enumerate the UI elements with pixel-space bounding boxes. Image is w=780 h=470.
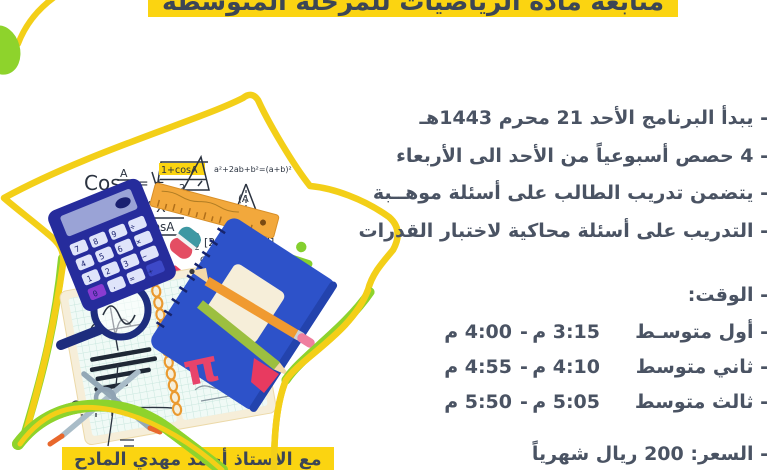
page-title-highlight: متابعة مادة الرياضيات للمرحلة المتوسطة xyxy=(148,0,678,17)
calc-keys-row: 123− xyxy=(81,244,163,286)
program-details: - يبدأ البرنامج الأحد 21 محرم 1443هـ - 4… xyxy=(412,100,768,470)
triangle-doodle xyxy=(183,157,209,190)
pencil-orange-icon xyxy=(189,268,310,343)
calc-keys-4: 0.=+ xyxy=(92,261,169,299)
notebook-scribbles xyxy=(195,381,235,402)
grade-label: - أول متوسـط xyxy=(640,315,768,350)
division-icon xyxy=(276,237,318,282)
teacher-badge: مع الأستاذ أحمد مهدي المادح xyxy=(62,447,334,470)
corner-decoration xyxy=(0,0,62,79)
program-line: - يبدأ البرنامج الأحد 21 محرم 1443هـ xyxy=(412,100,768,138)
program-line: - 4 حصص أسبوعياً من الأحد الى الأربعاء xyxy=(412,138,768,176)
flyer-root: Cos A 2 = ± 1+cosA 2 X² = ( X cosA a²+2a… xyxy=(0,0,780,470)
magnifier-icon xyxy=(61,283,148,345)
price-line: - السعر: 200 ريال شهرياً xyxy=(412,436,768,470)
schedule-row: - ثاني متوسط 4:10 م - 4:55 م xyxy=(412,350,768,385)
teacher-name: مع الأستاذ أحمد مهدي المادح xyxy=(74,450,322,470)
calc-keys-3: 123− xyxy=(86,246,163,284)
formula-x2b-text: = ( X xyxy=(130,200,166,216)
time-start: 4:10 م xyxy=(536,350,600,385)
time-dash: - xyxy=(512,350,536,385)
eraser-icon xyxy=(167,224,204,262)
formula-series: n 2 [2a+(n+1)d] Qu xyxy=(192,231,274,266)
program-line: - التدريب على أسئلة محاكية لاختبار القدر… xyxy=(412,213,768,251)
formula-cosa: cosA xyxy=(136,218,184,235)
ruler-icon xyxy=(150,182,280,238)
time-dash: - xyxy=(512,315,536,350)
axes-doodle xyxy=(58,364,172,446)
multiplication-icon xyxy=(142,257,194,309)
formula-series-den: 2 xyxy=(194,243,200,253)
formula-frac-den: 2 xyxy=(122,183,129,196)
grade-label: - ثاني متوسط xyxy=(640,350,768,385)
star-outline-icon xyxy=(4,95,398,470)
formula-identity-text: a²+2ab+b²=(a+b)² xyxy=(214,165,292,174)
notebook-icon xyxy=(59,258,277,445)
pencil-green-icon xyxy=(200,304,292,378)
calc-keys-row: 789÷ xyxy=(69,214,151,256)
pi-icon: π xyxy=(179,340,224,397)
schedule-heading: - الوقت: xyxy=(412,277,768,315)
bookmark-icon xyxy=(251,358,279,393)
time-end: 4:55 م xyxy=(448,350,512,385)
notebook-spiral xyxy=(151,285,182,416)
formula-series-num: n xyxy=(194,231,200,241)
book-icon xyxy=(144,212,339,413)
formula-x-squared: X² = ( X xyxy=(79,199,166,221)
formula-sqrt-den: 2 xyxy=(179,183,185,194)
calc-keys-1: 789÷ xyxy=(74,216,151,254)
formula-cos-half-angle: Cos A 2 = ± 1+cosA 2 xyxy=(84,162,208,196)
time-end: 4:00 م xyxy=(448,315,512,350)
calc-keys-row: 0.=+ xyxy=(87,258,169,300)
compass-icon xyxy=(50,372,160,444)
time-start: 5:05 م xyxy=(536,385,600,420)
formula-frac-num: A xyxy=(120,167,128,180)
schedule-row: - أول متوسـط 3:15 م - 4:00 م xyxy=(412,315,768,350)
formula-x2-text: X² xyxy=(79,199,101,221)
formula-sqrt-num: 1+cosA xyxy=(161,165,198,176)
notebook-text-bars xyxy=(88,346,161,392)
time-dash: - xyxy=(512,385,536,420)
time-end: 5:50 م xyxy=(448,385,512,420)
cone-doodle xyxy=(230,184,262,232)
formula-angle-text: (A xyxy=(238,194,249,205)
calculator-icon: 789÷ 456× 123− 0.=+ xyxy=(45,176,178,314)
formula-cosa-text: cosA xyxy=(146,220,175,234)
formula-series-body: [2a+(n+1)d] xyxy=(204,236,274,249)
calc-keys-2: 456× xyxy=(80,231,157,269)
schedule-row: - ثالث متوسط 5:05 م - 5:50 م xyxy=(412,385,768,420)
notebook-sine-doodle xyxy=(82,302,147,355)
formula-cos-text: Cos xyxy=(84,171,121,195)
calc-keys-row: 456× xyxy=(75,229,157,271)
time-start: 3:15 م xyxy=(536,315,600,350)
page-title: متابعة مادة الرياضيات للمرحلة المتوسطة xyxy=(162,0,664,18)
formula-eq: = ± xyxy=(137,176,165,192)
formula-qu-text: Qu xyxy=(200,256,213,266)
program-line: - يتضمن تدريب الطالب على أسئلة موهــبة xyxy=(412,175,768,213)
grade-label: - ثالث متوسط xyxy=(640,385,768,420)
